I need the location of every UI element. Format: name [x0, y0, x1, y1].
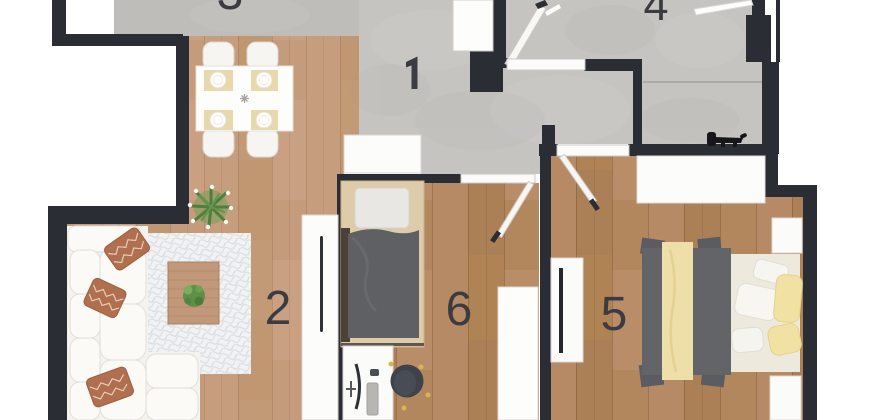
svg-text:4: 4: [643, 0, 668, 30]
svg-text:5: 5: [601, 288, 628, 341]
svg-text:2: 2: [265, 282, 292, 335]
svg-text:3: 3: [217, 0, 244, 20]
svg-text:6: 6: [446, 283, 473, 336]
